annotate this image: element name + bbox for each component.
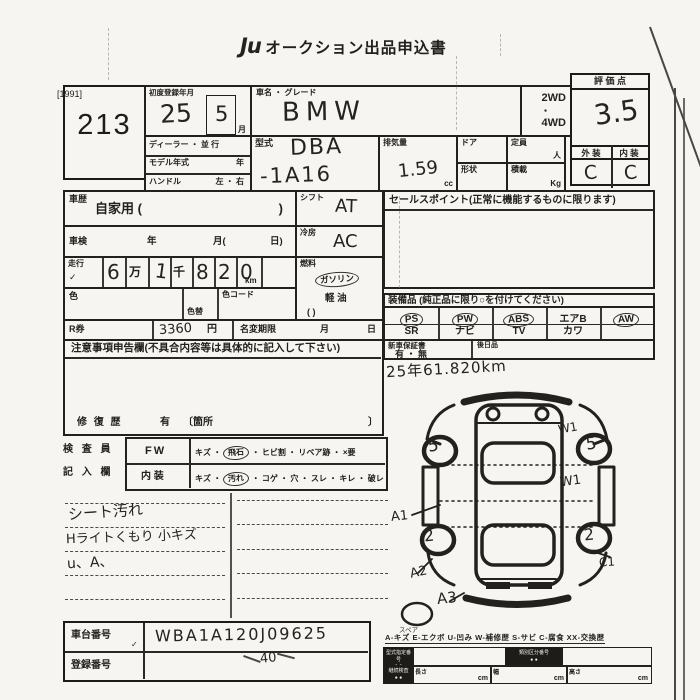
load-unit: Kg xyxy=(550,180,561,189)
height-label: 高さ xyxy=(569,667,581,676)
shaken-label: 車検 xyxy=(69,237,87,247)
ac-label: 冷房 xyxy=(300,229,316,238)
color-change-label: 色替 xyxy=(187,308,203,317)
length-label: 長さ xyxy=(415,667,427,676)
shaken-day: 日) xyxy=(270,237,283,247)
lot-number: 213 xyxy=(65,109,144,142)
drive-4wd: 4WD xyxy=(542,117,566,129)
continuation-dots: ● ● xyxy=(384,675,413,682)
model-code-value: DBA xyxy=(290,136,344,160)
auction-sheet: Ju オークション出品申込書 [1991] 213 初度登録年月 25 5 月 … xyxy=(0,0,700,700)
rename-deadline-label: 名変期限 xyxy=(240,325,276,335)
lot-number-box: [1991] 213 xyxy=(63,85,146,180)
shaken-month: 月( xyxy=(213,237,226,247)
notice-header: 注意事項申告欄(不具合内容等は具体的に記入して下さい) xyxy=(71,343,340,355)
color-label: 色 xyxy=(69,292,78,302)
scan-dash-1 xyxy=(108,28,109,80)
inspector-r2-items: キズ ・ 汚れ ・ コゲ ・ 穴 ・ スレ ・ キレ ・ 破レ xyxy=(195,472,384,486)
dealer-model-handle-cell: ディーラー ・ 並 行 モデル年式 年 ハンドル 左 ・ 右 xyxy=(144,135,252,192)
continuation-text: 継続検査 xyxy=(384,668,413,675)
shaken-cell: 車検 年 月( 日) xyxy=(63,225,297,258)
chassis-box: 車台番号 ✓ WBA1A120J09625 40 登録番号 xyxy=(63,621,371,682)
fuel-diesel: 軽 油 xyxy=(325,294,347,304)
class-number-dots: ● ● xyxy=(506,657,562,664)
first-registration-cell: 初度登録年月 25 5 月 xyxy=(144,85,252,137)
note-line-1: シート汚れ xyxy=(68,502,144,522)
history-value: 自家用 ( xyxy=(95,202,142,216)
r2-circled-yogore: 汚れ xyxy=(223,471,250,487)
form-title: Ju オークション出品申込書 xyxy=(240,36,500,62)
exterior-grade: C xyxy=(583,163,598,183)
repair-close: 〕 xyxy=(368,417,378,428)
fuel-gasoline-circled: ガソリン xyxy=(315,270,360,288)
mileage-digit-2: 1 xyxy=(154,260,169,282)
class-number-label: 類別区分番号 ● ● xyxy=(505,647,563,667)
car-name-value: BMW xyxy=(282,98,366,125)
continuation-label: 継続検査 ● ● xyxy=(383,665,414,684)
chassis-label: 車台番号 xyxy=(71,630,111,641)
chassis-note-40: 40 xyxy=(259,651,277,666)
equip-airbag: エアB xyxy=(559,314,586,325)
color-code-label: 色コード xyxy=(222,291,254,300)
drive-dot: ・ xyxy=(541,107,550,117)
rename-day: 日 xyxy=(367,325,376,335)
history-cell: 車歴 自家用 ( ) xyxy=(63,190,297,227)
car-diagram xyxy=(388,383,665,635)
note-line-3: u、A、 xyxy=(67,555,114,571)
capacity-unit: 人 xyxy=(553,152,561,161)
note-line-2: Hライトくもり 小キズ xyxy=(66,529,197,547)
mileage-label: 走行 xyxy=(68,260,84,269)
equip-tv: TV xyxy=(492,326,546,337)
shift-value: AT xyxy=(335,198,358,217)
length-cell: 長さ cm xyxy=(412,665,492,684)
score-label: 評 価 点 xyxy=(572,75,648,90)
shape-cell: 形状 xyxy=(456,162,508,192)
damage-a3: A3 xyxy=(436,590,457,607)
damage-c1: C1 xyxy=(599,555,616,568)
ju-logo: Ju xyxy=(240,34,261,58)
type-number-label: 型式指定番号 ● ● xyxy=(383,647,414,667)
model-code-cell: 型式 DBA -1A16 xyxy=(250,135,380,192)
shape-label: 形状 xyxy=(461,166,477,175)
doc-code: [1991] xyxy=(57,89,82,99)
repair-history-label: 修 復 歴 xyxy=(77,417,123,428)
r2-post: ・ コゲ ・ 穴 ・ スレ ・ キレ ・ 破レ xyxy=(252,474,384,483)
equip-kawa: カワ xyxy=(546,326,600,337)
damage-a1: A1 xyxy=(390,509,408,524)
first-registration-month: 5 xyxy=(215,104,228,125)
chassis-value: WBA1A120J09625 xyxy=(155,625,328,644)
mileage-digit-3: 8 xyxy=(196,262,209,282)
repair-location: 〔箇所 xyxy=(183,417,213,428)
first-registration-month-box: 5 xyxy=(206,95,236,135)
inspector-label-1: 検 査 員 xyxy=(63,444,125,455)
inspector-table: FW キズ ・ 飛石 ・ ヒビ割 ・ リペア跡 ・ ×要 内 装 キズ ・ 汚れ… xyxy=(125,437,388,491)
wheel-rear-right-mark: 2 xyxy=(583,527,595,544)
type-number-text: 型式指定番号 xyxy=(384,650,413,663)
door-label: ドア xyxy=(461,139,477,148)
mileage-digit-4: 2 xyxy=(218,262,231,282)
capacity-cell: 定員 人 xyxy=(506,135,566,164)
inspector-r2-head: 内 装 xyxy=(141,471,164,482)
sales-point-box: セールスポイント(正常に機能するものに限ります) xyxy=(383,190,655,289)
fuel-label: 燃料 xyxy=(300,260,316,269)
displacement-cell: 排気量 1.59 cc xyxy=(378,135,458,192)
inspector-label-2: 記 入 欄 xyxy=(63,467,125,478)
r2-pre: キズ ・ xyxy=(195,474,221,483)
handle-label: ハンドル xyxy=(149,178,181,187)
model-year-label: モデル年式 xyxy=(149,159,189,168)
load-cell: 積載 Kg xyxy=(506,162,566,192)
shaken-year: 年 xyxy=(147,237,157,247)
load-label: 積載 xyxy=(511,166,527,175)
dealer-label: ディーラー ・ 並 行 xyxy=(149,141,219,150)
model-year-unit: 年 xyxy=(236,159,244,168)
rticket-row: R券 3360 円 名変期限 月 日 xyxy=(63,319,384,341)
model-code-value2: -1A16 xyxy=(260,164,333,188)
later-item-label: 後日品 xyxy=(477,342,498,350)
r1-post: ・ ヒビ割 ・ リペア跡 ・ ×要 xyxy=(252,448,356,457)
equip-sr: SR xyxy=(385,326,438,337)
damage-w1-mid: W1 xyxy=(559,474,582,490)
exterior-label: 外 装 xyxy=(572,149,610,158)
score-value: 3.5 xyxy=(592,96,640,130)
sales-point-header: セールスポイント(正常に機能するものに限ります) xyxy=(389,195,616,206)
first-registration-label: 初度登録年月 xyxy=(149,89,194,97)
color-cell: 色 色替 色コード xyxy=(63,287,297,321)
rticket-unit: 円 xyxy=(207,324,217,335)
drive-type-cell: 2WD ・ 4WD xyxy=(520,85,572,137)
length-unit: cm xyxy=(478,675,488,682)
shift-label: シフト xyxy=(300,194,324,203)
damage-legend: A-キズ E-エクボ U-凹み W-補修歴 S-サビ C-腐食 XX-交換歴 xyxy=(385,634,605,644)
first-registration-year: 25 xyxy=(159,100,192,127)
mileage-check: ✓ xyxy=(69,274,77,283)
chassis-check: ✓ xyxy=(131,641,138,649)
equip-aw: AW xyxy=(613,312,640,328)
interior-grade: C xyxy=(623,163,638,183)
capacity-label: 定員 xyxy=(511,139,527,148)
displacement-value: 1.59 xyxy=(397,159,439,181)
fuel-paren: ( ) xyxy=(307,308,316,318)
history-paren: ) xyxy=(279,202,283,216)
width-label: 幅 xyxy=(493,667,499,676)
spare-tire-label: スペア xyxy=(399,624,418,634)
form-title-text: オークション出品申込書 xyxy=(265,40,447,57)
inspector-r1-items: キズ ・ 飛石 ・ ヒビ割 ・ リペア跡 ・ ×要 xyxy=(195,446,356,460)
mileage-km-unit: km xyxy=(245,277,257,286)
handle-options: 左 ・ 右 xyxy=(216,178,244,187)
rticket-amount: 3360 xyxy=(159,322,193,337)
fuel-cell: 燃料 ガソリン 軽 油 ( ) xyxy=(295,256,384,321)
wheel-front-left-mark: 5 xyxy=(427,437,440,455)
month-unit: 月 xyxy=(238,126,246,135)
warranty-cell: 新車保証書 有 ・ 無 後日品 xyxy=(383,339,655,360)
wheel-rear-left-mark: 2 xyxy=(423,528,435,545)
scan-edge-line-1 xyxy=(674,88,676,700)
model-code-label: 型式 xyxy=(255,139,273,149)
damage-w1-top: W1 xyxy=(557,420,578,435)
width-cell: 幅 cm xyxy=(490,665,568,684)
equip-navi: ナビ xyxy=(438,326,492,337)
car-name-cell: 車名 ・ グレード BMW xyxy=(250,85,522,137)
inspector-labels: 検 査 員 記 入 欄 xyxy=(63,438,125,490)
displacement-unit: cc xyxy=(444,180,453,189)
ac-value: AC xyxy=(333,233,358,251)
scan-dash-3 xyxy=(399,196,400,288)
rticket-label: R券 xyxy=(69,325,85,335)
scan-dash-2 xyxy=(456,56,457,130)
width-unit: cm xyxy=(554,675,564,682)
score-box: 評 価 点 3.5 外 装 内 装 C C xyxy=(570,73,650,186)
rename-month: 月 xyxy=(320,325,329,335)
scan-edge-line-2 xyxy=(683,98,685,700)
interior-label: 内 装 xyxy=(610,149,648,158)
height-cell: 高さ cm xyxy=(566,665,652,684)
height-unit: cm xyxy=(638,675,648,682)
mileage-unit-man: 万 xyxy=(129,266,141,279)
odometer-note: 25年61.820km xyxy=(386,359,507,380)
warranty-options: 有 ・ 無 xyxy=(395,350,427,360)
scan-dash-4 xyxy=(500,34,501,56)
inspector-r1-head: FW xyxy=(145,445,166,457)
mileage-unit-sen: 千 xyxy=(173,266,185,279)
repair-has: 有 xyxy=(160,417,170,428)
mileage-digit-1: 6 xyxy=(107,262,120,282)
notice-box: 注意事項申告欄(不具合内容等は具体的に記入して下さい) 修 復 歴 有 〔箇所 … xyxy=(63,339,384,436)
door-cell: ドア xyxy=(456,135,508,164)
equipment-grid: PS PW ABS エアB AW SR ナビ TV カワ xyxy=(383,306,655,341)
type-number-value-cell xyxy=(412,647,507,667)
r1-pre: キズ ・ xyxy=(195,448,221,457)
class-number-value-cell xyxy=(561,647,652,667)
damage-a2: A2 xyxy=(409,564,428,580)
history-label: 車歴 xyxy=(69,195,87,205)
equipment-header: 装備品 (純正品に限り○を付けてください) xyxy=(388,296,564,306)
drive-2wd: 2WD xyxy=(542,92,566,104)
displacement-label: 排気量 xyxy=(383,139,407,148)
ac-cell: 冷房 AC xyxy=(295,225,384,258)
shift-cell: シフト AT xyxy=(295,190,384,227)
mileage-cell: 走行 ✓ 6 万 1 千 8 2 0 km xyxy=(63,256,297,289)
r1-circled-tobiishi: 飛石 xyxy=(223,445,250,461)
wheel-front-right-mark: 5 xyxy=(585,435,598,453)
registration-label: 登録番号 xyxy=(71,660,111,671)
